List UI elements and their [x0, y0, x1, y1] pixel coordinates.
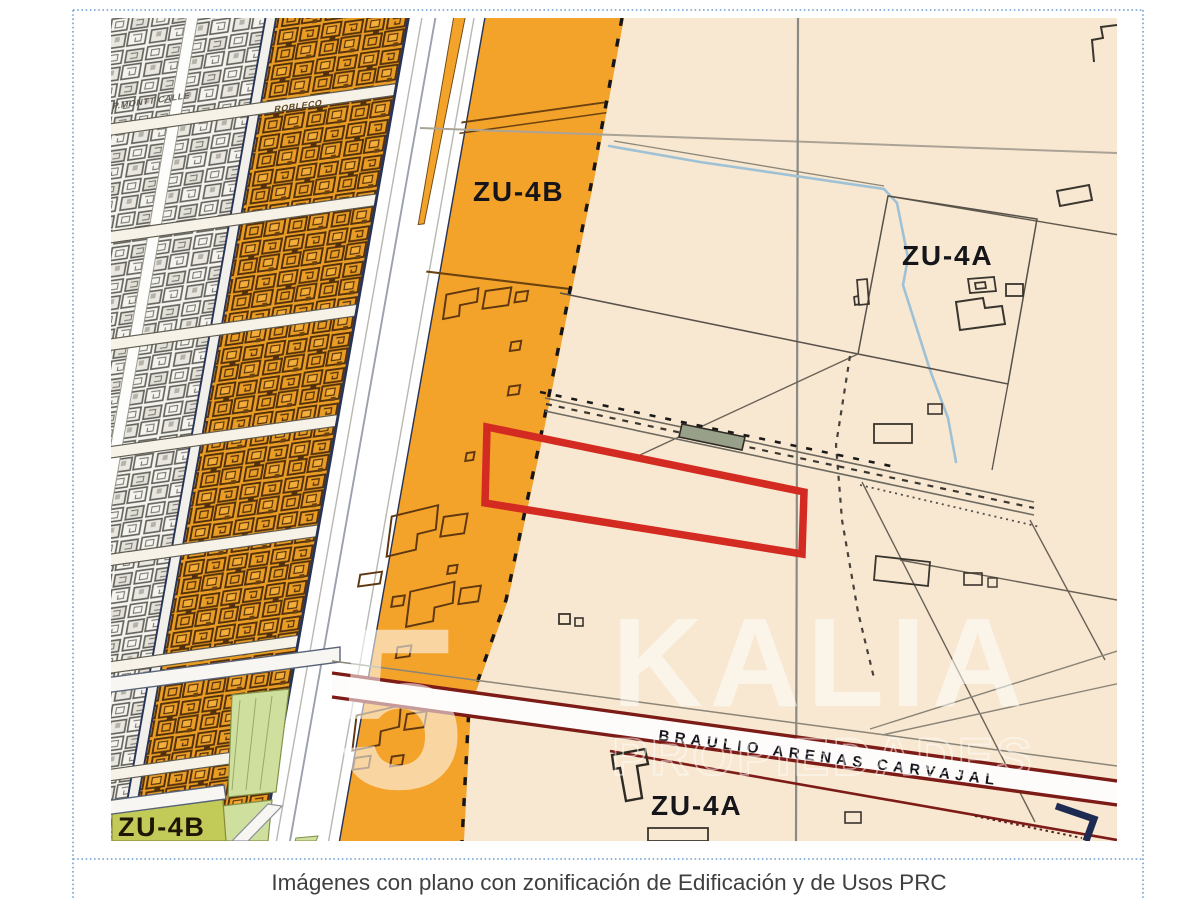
svg-text:PROPIEDADES: PROPIEDADES	[612, 728, 1035, 787]
svg-text:ZU-4A: ZU-4A	[902, 240, 993, 271]
svg-text:5: 5	[336, 580, 464, 837]
svg-text:ZU-4B: ZU-4B	[473, 176, 564, 207]
svg-text:ZU-4B: ZU-4B	[118, 812, 206, 842]
svg-text:Imágenes con plano con zonific: Imágenes con plano con zonificación de E…	[271, 870, 946, 895]
svg-text:KALIA: KALIA	[612, 592, 1029, 733]
svg-text:ZU-4A: ZU-4A	[651, 790, 742, 821]
